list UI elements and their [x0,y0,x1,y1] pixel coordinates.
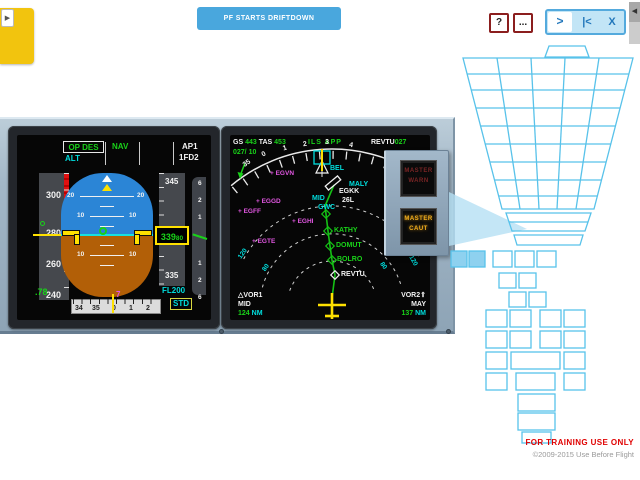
attitude-indicator: 20 20 10 10 10 10 [61,173,153,297]
vor1-info-block: △VOR1 MID 124 NM [238,292,263,317]
vor1-distance: 124 [238,310,250,317]
wind-readout: 027/ 10 [233,149,256,156]
fma-divider [139,142,140,165]
to-waypoint-name: REVTU [371,139,395,146]
gs-value: 443 [245,139,257,146]
waypoint-label: KATHY [334,227,358,234]
left-drawer-tab[interactable]: ▶ [0,8,34,64]
pitch-label: 10 [77,213,84,220]
app-window: ▶ PF STARTS DRIFTDOWN ? ... > |< X ◀ OP … [0,0,640,480]
vor2-name: VOR2 [401,292,420,299]
offroute-airport-label: + EGGD [256,199,281,206]
restart-button[interactable]: |< [574,12,600,32]
tas-label: TAS [259,139,272,146]
pitch-line-m10 [90,255,124,256]
vor1-name: VOR1 [243,292,262,299]
vsi-tick-label: 2 [198,198,202,205]
current-altitude-readout: 33980 [155,226,189,245]
display-location-highlight[interactable] [469,251,485,267]
cockpit-schematic-map[interactable] [445,44,640,449]
pitch-line-15 [100,206,114,207]
waypoint-label: DOMUT [336,242,362,249]
heading-tick-label: 34 [75,305,83,312]
display-location-highlight[interactable] [451,251,467,267]
fma-ap-status: AP1 [182,143,198,151]
groundspeed-readout: GS 443 TAS 453 [233,139,286,146]
vor1-ident: MID [238,301,263,308]
fix-label: MALY [349,181,368,188]
alt-tick-label: 345 [165,178,178,186]
pitch-line-10 [90,216,124,217]
green-dot-speed-marker [40,221,45,226]
master-caut-label: MASTER [404,216,432,222]
pfd-bezel: OP DES ALT NAV AP1 1FD2 300 280 260 240 [8,126,220,329]
right-drawer-tab[interactable]: ◀ [629,2,640,44]
runway-label: 26L [342,197,354,204]
warning-subpanel: MASTER WARN MASTER CAUT [384,150,449,256]
glareshield-schematic[interactable] [451,251,556,307]
event-button[interactable]: PF STARTS DRIFTDOWN [197,7,341,30]
panel-screw [219,329,224,334]
heading-tick-label: 1 [129,305,133,312]
mach-readout: .78 [35,288,48,297]
waypoint-label: REVTU [341,271,365,278]
offroute-airport-label: + EGTE [252,239,275,246]
bank-scale-pointer-icon [102,175,112,182]
heading-scale: 34 35 0 1 2 [71,299,161,314]
pitch-line-m15 [100,265,114,266]
master-warn-button[interactable]: MASTER WARN [400,160,437,197]
vsi-tick-label: 1 [198,215,202,222]
selected-heading-bug: 7 [116,291,120,299]
pitch-line-20 [80,196,134,197]
vor2-ident: MAY [394,301,426,308]
baro-reference: STD [170,298,192,310]
altitude-drum: 80 [176,235,183,242]
fma-vertical-mode: OP DES [63,141,104,153]
pfd-screen[interactable]: OP DES ALT NAV AP1 1FD2 300 280 260 240 [17,135,211,320]
fix-label: BEL [330,165,344,172]
heading-tick-label: 35 [92,305,100,312]
vor2-pointer-icon: ⇑ [420,292,426,299]
vsi-tick-label: 6 [198,181,202,188]
heading-ticks [73,299,159,304]
vsi-tick-label: 1 [198,261,202,268]
compass-label: 2 [303,141,308,148]
bank-index-icon [102,184,112,191]
speed-tick-label: 260 [46,260,61,269]
vor1-unit: NM [252,310,263,317]
master-warn-label: WARN [408,178,428,184]
gs-label: GS [233,139,243,146]
vsi-tick-label: 6 [198,295,202,302]
copyright-text: ©2009-2015 Use Before Flight [533,450,634,459]
master-caut-button[interactable]: MASTER CAUT [400,208,437,245]
fma-divider [105,142,106,165]
close-button[interactable]: X [601,12,623,32]
alt-tick-label: 335 [165,272,178,280]
offroute-airport-label: + EGHI [292,219,314,226]
master-warn-label: MASTER [404,168,432,174]
vor2-distance: 137 [401,310,413,317]
fma-divider [173,142,174,165]
ownship-aircraft-icon [318,293,346,319]
fma-fd-status: 1FD2 [179,154,199,162]
pitch-label: 20 [67,193,74,200]
training-disclaimer: FOR TRAINING USE ONLY [525,438,634,447]
wind-arrow-head [238,172,244,179]
pitch-label: 10 [129,213,136,220]
fma-armed-mode: ALT [65,155,80,163]
pedestal-schematic[interactable] [486,310,585,443]
speed-tick-label: 240 [46,291,61,300]
fma-lateral-mode: NAV [112,143,128,151]
step-forward-button[interactable]: > [548,12,572,32]
vor2-info-block: VOR2⇑ MAY 137 NM [394,292,426,317]
left-wing-symbol [75,235,79,244]
offroute-airport-label: + EGFF [238,209,261,216]
playback-toolbar: > |< X [545,9,626,35]
airport-label: EGKK [339,188,359,195]
waypoint-label: BOLRO [337,256,362,263]
flight-path-vector-icon [99,227,107,235]
master-caut-label: CAUT [409,226,428,232]
to-waypoint-readout: REVTU027 [371,139,406,146]
vor2-unit: NM [415,310,426,317]
altitude-hundreds: 339 [161,232,176,242]
selected-altitude: FL200 [162,287,185,295]
pitch-label: 20 [137,193,144,200]
expand-right-icon[interactable]: ▶ [1,9,14,27]
heading-tick-label: 2 [146,305,150,312]
offroute-airport-label: + EGVN [270,171,294,178]
navaid-label: GWC [318,204,335,211]
pitch-label: 10 [129,252,136,259]
navaid-label: MID [312,195,325,202]
speed-tick-label: 300 [46,191,61,200]
vsi-tick-label: 2 [198,278,202,285]
pitch-line-m5 [100,245,114,246]
help-button[interactable]: ? [489,13,509,33]
right-wing-symbol [135,235,139,244]
collapse-left-icon[interactable]: ◀ [629,2,640,22]
to-waypoint-bearing: 027 [395,139,407,146]
pitch-label: 10 [77,252,84,259]
heading-lubber-line [112,294,114,313]
compass-label: 3 [325,139,329,146]
more-options-button[interactable]: ... [513,13,533,33]
